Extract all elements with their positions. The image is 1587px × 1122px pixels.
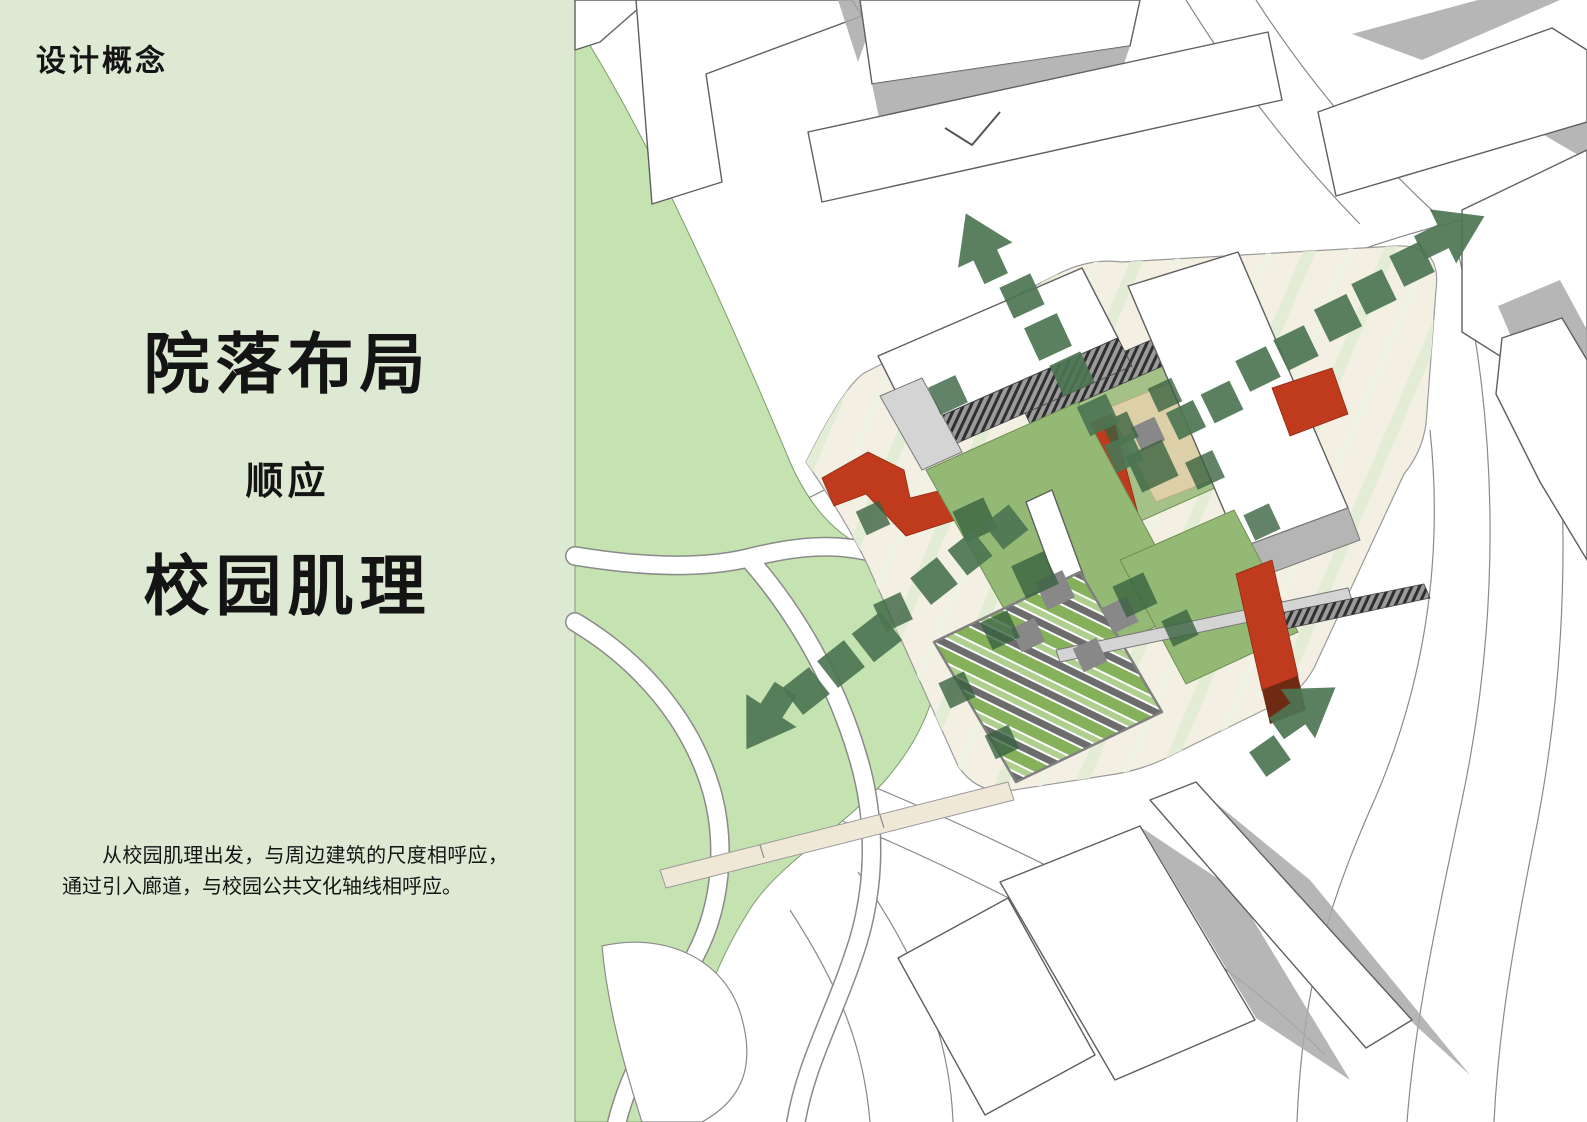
building-east xyxy=(1496,318,1587,560)
site-plan xyxy=(0,0,1587,1122)
axis-arrow-north xyxy=(939,201,1024,292)
slide: 设计概念 院落布局 顺应 校园肌理 从校园肌理出发，与周边建筑的尺度相呼应，通过… xyxy=(0,0,1587,1122)
